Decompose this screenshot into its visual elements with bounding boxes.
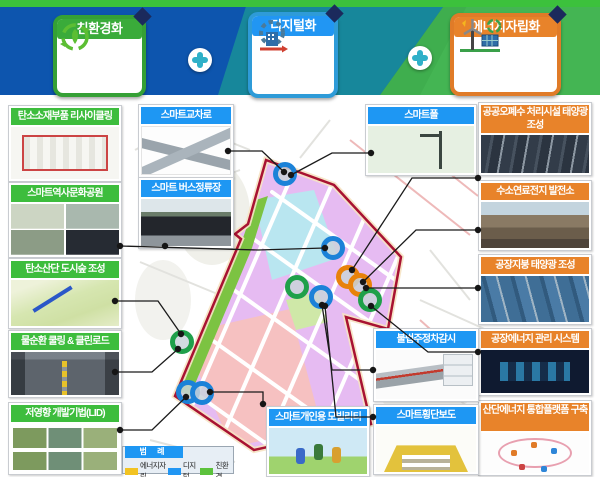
card-label: 탄소소재부품 리사이클링 [11,108,119,125]
recycle-leaf-icon [57,39,142,89]
card-label: 스마트개인용 모빌리티 [269,409,367,426]
card-lid: 저영향 개발기법(LID) [8,402,122,475]
pillar-digital: 디지털화 [248,12,338,98]
card-image [376,350,476,399]
card-label: 공공오폐수 처리시설 태양광조성 [481,105,589,133]
map-marker-energy [351,276,370,295]
legend-label-eco: 친환경 [215,460,231,477]
card-smart-history-culture-park: 스마트역사문화공원 [8,182,122,258]
card-image [11,280,119,326]
connector-line [115,349,178,372]
gear-building-icon [252,36,334,90]
card-image [141,199,231,246]
connector-line [291,153,371,175]
card-label: 불법주정차감시 [376,331,476,348]
legend-swatch-eco [200,468,213,475]
card-image [481,433,589,473]
legend-swatch-digital [168,468,181,475]
connector-dot [175,346,181,352]
card-image [11,204,119,255]
card-image [11,127,119,179]
card-label: 공장지붕 태양광 조성 [481,257,589,274]
card-image [11,352,119,395]
map-marker-eco [173,333,192,352]
card-illegal-parking-monitoring: 불법주정차감시 [373,328,479,402]
connector-line [352,178,478,270]
card-carbon-material-recycling: 탄소소재부품 리사이클링 [8,105,122,182]
connector-dot [322,245,328,251]
legend-swatch-energy [125,468,138,475]
card-energy-platform: 산단에너지 통합플랫폼 구축 [478,400,592,476]
card-image [481,276,589,322]
card-water-cooling-clean-road: 물순환 쿨링 & 클린로드 [8,330,122,398]
card-smart-crosswalk: 스마트횡단보도 [373,404,479,475]
legend-title: 범 례 [125,446,183,458]
card-image [269,428,367,474]
card-image [11,424,119,472]
connector-line [363,230,478,282]
connector-dot [368,303,374,309]
card-image [376,426,476,472]
legend: 범 례 에너지자립 디지털 친환경 [122,446,234,474]
connector-dot [363,285,369,291]
card-hydrogen-fuel-cell-plant: 수소연료전지 발전소 [478,180,592,251]
connector-line [120,397,186,430]
card-label: 탄소산단 도시숲 조성 [11,261,119,278]
connector-line [322,305,373,370]
map-marker-digital [276,165,295,184]
wind-turbine-solar-icon [454,37,557,88]
card-smart-bus-stop: 스마트 버스정류장 [138,177,234,249]
connector-dot [207,389,213,395]
card-factory-energy-management: 공장에너지 관리 시스템 [478,328,592,396]
card-smart-pole: 스마트폴 [365,104,477,176]
card-label: 물순환 쿨링 & 클린로드 [11,333,119,350]
connector-dot [322,303,328,309]
map-marker-digital [312,288,331,307]
connector-dot [360,279,366,285]
map-marker-energy [339,268,358,287]
map-marker-eco [361,291,380,310]
card-label: 수소연료전지 발전소 [481,183,589,200]
map-marker-eco [288,278,307,297]
smart-industrial-complex-infographic: 친환경화 디지털화 [0,0,600,477]
card-label: 공장에너지 관리 시스템 [481,331,589,348]
card-label: 스마트폴 [368,107,474,124]
card-factory-roof-solar: 공장지붕 태양광 조성 [478,254,592,325]
card-image [141,126,231,175]
map-marker-digital [193,384,212,403]
card-image [481,202,589,248]
pillar-energy: 에너지자립화 [450,13,561,96]
legend-label-energy: 에너지자립 [140,460,166,477]
header-band: 친환경화 디지털화 [0,0,600,95]
connector-line [115,301,181,334]
card-urban-forest: 탄소산단 도시숲 조성 [8,258,122,329]
card-wastewater-solar: 공공오폐수 처리시설 태양광조성 [478,102,592,176]
card-smart-intersection: 스마트교차로 [138,104,234,178]
connector-dot [288,172,294,178]
connector-dot [281,169,287,175]
map-marker-digital [179,383,198,402]
card-label: 산단에너지 통합플랫폼 구축 [481,403,589,431]
legend-items: 에너지자립 디지털 친환경 [125,460,231,477]
plus-icon [188,48,212,72]
card-label: 스마트교차로 [141,107,231,124]
connector-dot [349,267,355,273]
pillar-eco: 친환경화 [53,15,146,97]
connector-line [228,151,284,172]
connector-dot [319,302,325,308]
map-marker-digital [324,239,343,258]
legend-label-digital: 디지털 [183,460,199,477]
connector-line [325,306,373,417]
card-image [368,126,474,173]
connector-dot [183,394,189,400]
card-label: 스마트횡단보도 [376,407,476,424]
connector-dot [178,331,184,337]
card-label: 저영향 개발기법(LID) [11,405,119,422]
card-label: 스마트역사문화공원 [11,185,119,202]
plus-icon [408,46,432,70]
card-label: 스마트 버스정류장 [141,180,231,197]
card-image [481,135,589,173]
connector-line [210,392,263,404]
card-image [481,350,589,393]
card-personal-mobility: 스마트개인용 모빌리티 [266,406,370,477]
